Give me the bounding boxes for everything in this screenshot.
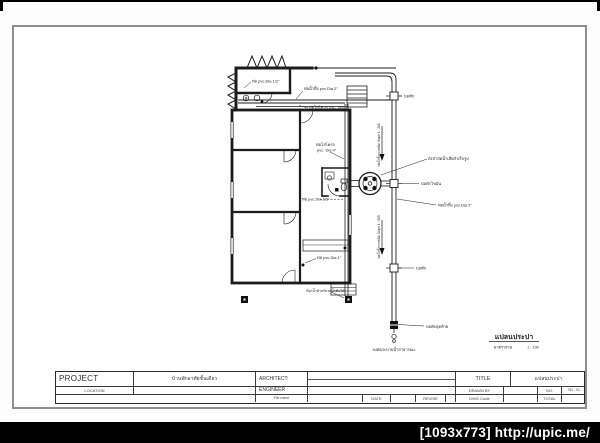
title-block-row-1: PROJECT บ้านพักอาศัยชั้นเดียว ARCHITECT:… xyxy=(56,372,584,386)
watermark-bar: [1093x773] http://upic.me/ xyxy=(0,422,600,443)
title-label: TITLE xyxy=(456,372,511,386)
project-value: บ้านพักอาศัยชั้นเดียว xyxy=(134,372,256,386)
watermark-text: [1093x773] http://upic.me/ xyxy=(420,425,600,440)
window-edge-left xyxy=(0,0,3,11)
row3-blank-1 xyxy=(56,395,256,402)
dwg-code-label: DWG Code xyxy=(456,395,504,402)
date-value xyxy=(391,395,416,402)
project-label: PROJECT xyxy=(56,372,134,386)
architect-name-lines xyxy=(308,372,456,386)
title-block-row-2: LOCATION ENGINEER DRAWN BY NO. SN - 01 xyxy=(56,386,584,394)
total-label: TOTAL xyxy=(538,395,562,402)
dwg-code-value xyxy=(504,395,538,402)
engineer-name-blank xyxy=(308,387,456,394)
file-name-label: File name xyxy=(256,395,308,402)
revise-label: REVISE xyxy=(416,395,446,402)
date-label: DATE xyxy=(363,395,391,402)
location-label: LOCATION xyxy=(56,387,134,394)
title-block-row-3: File name DATE REVISE DWG Code TOTAL xyxy=(56,394,584,402)
drawing-sheet xyxy=(12,25,587,409)
location-value xyxy=(134,387,256,394)
drawn-by-label: DRAWN BY xyxy=(456,387,504,394)
row3-blank-2 xyxy=(446,395,456,402)
file-name-value xyxy=(308,395,363,402)
engineer-label: ENGINEER xyxy=(256,387,308,394)
architect-label: ARCHITECT: xyxy=(256,372,308,386)
no-value: SN - 01 xyxy=(562,387,586,394)
title-value: แปลนประปา xyxy=(511,372,586,386)
total-value xyxy=(562,395,586,402)
drawn-by-value xyxy=(504,387,538,394)
title-block: PROJECT บ้านพักอาศัยชั้นเดียว ARCHITECT:… xyxy=(55,371,585,404)
window-top-strip xyxy=(0,0,600,2)
no-label: NO. xyxy=(538,387,562,394)
